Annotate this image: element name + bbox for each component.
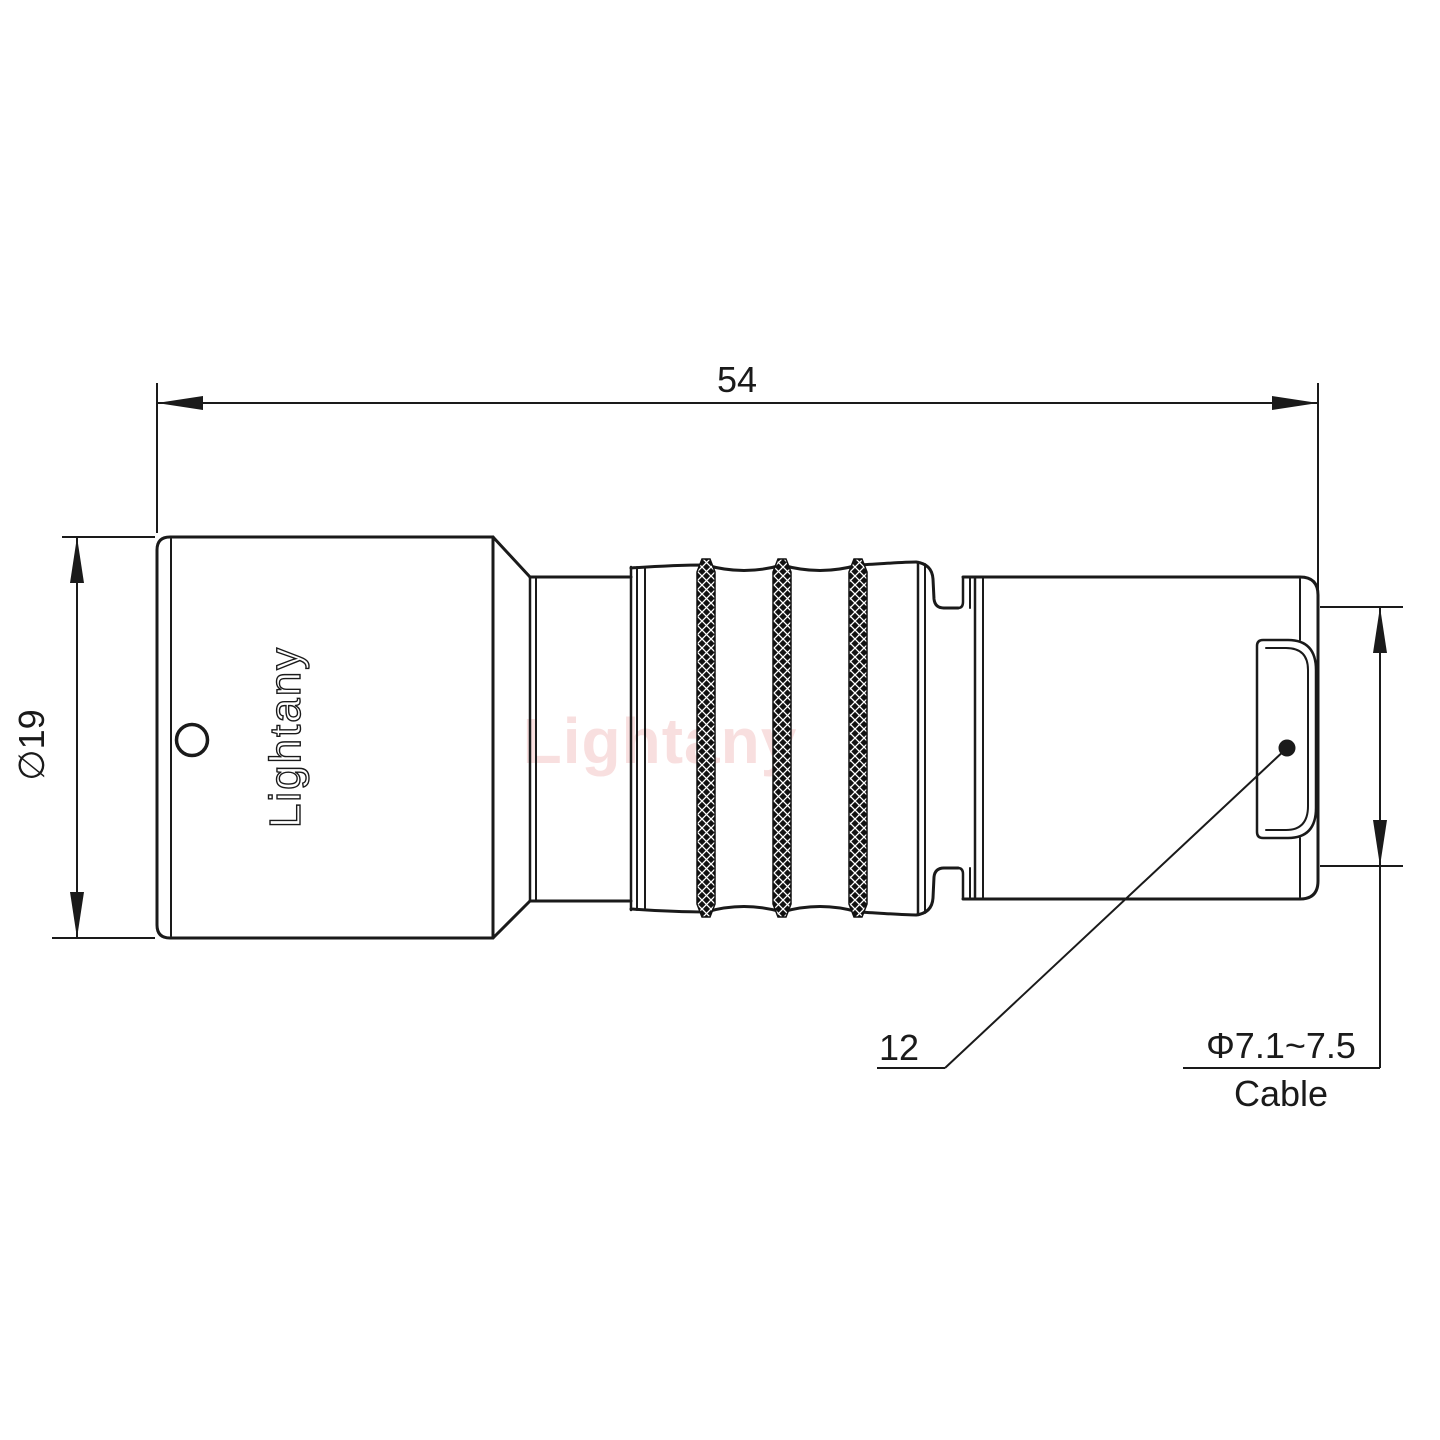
cone-taper <box>493 537 536 938</box>
connector-drawing-canvas: Lightany <box>0 0 1440 1440</box>
body-logo-text: Lightany <box>261 646 310 828</box>
dim-arrow-left-icon <box>157 396 203 410</box>
dim-body-diameter-value: ∅19 <box>11 709 52 780</box>
cable-side-body <box>963 577 1318 899</box>
dim-cable-label: Cable <box>1234 1073 1328 1114</box>
dim-arrow-right-icon <box>1272 396 1318 410</box>
knurl-band <box>849 559 867 917</box>
groove-ring <box>944 577 970 899</box>
dim-arrow-cable-down-icon <box>1373 820 1387 866</box>
dim-cable-range-value: Φ7.1~7.5 <box>1206 1025 1356 1066</box>
leader-ref-value: 12 <box>879 1027 919 1068</box>
knurl-band <box>773 559 791 917</box>
leader-ref-12 <box>877 748 1287 1068</box>
body-hole <box>177 725 208 756</box>
knurl-band <box>697 559 715 917</box>
dim-body-diameter <box>52 537 155 938</box>
connector-drawing: Lightany <box>0 0 1440 1440</box>
cable-boot <box>1257 640 1316 838</box>
dim-arrow-cable-up-icon <box>1373 607 1387 653</box>
leader-dot-icon <box>1279 740 1296 757</box>
dim-arrow-down-icon <box>70 892 84 938</box>
watermark-text: Lightany <box>523 705 798 777</box>
dim-overall-length-value: 54 <box>717 359 757 400</box>
dim-arrow-up-icon <box>70 537 84 583</box>
